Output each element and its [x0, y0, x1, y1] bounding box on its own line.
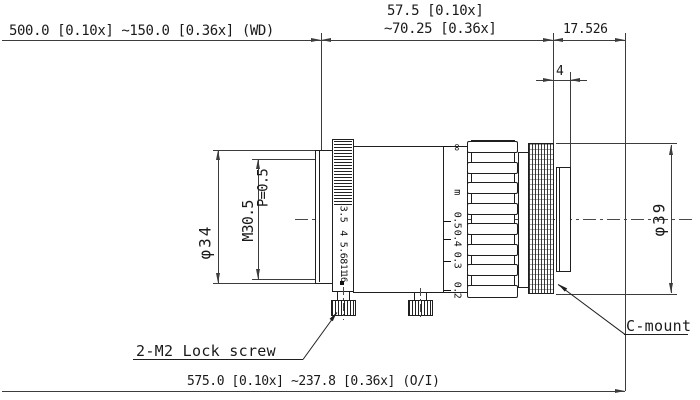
leader-arrowhead	[557, 282, 567, 291]
dimension-text-front-length-2: ~70.25 [0.36x]	[384, 22, 496, 37]
focus-scale-value: ∞	[451, 144, 464, 150]
dimension-line-front-diameter	[218, 150, 219, 283]
c-mount-thread-edge-line	[559, 168, 560, 271]
dimension-line-wd	[2, 40, 321, 41]
extension-line	[252, 279, 316, 280]
aperture-scale-value: 5.6	[338, 242, 349, 259]
arrowhead	[615, 389, 625, 393]
dimension-line-front	[321, 40, 553, 41]
extension-line	[556, 294, 677, 295]
dimension-text-filter-thread: M30.5	[241, 200, 257, 241]
focus-grip-rib	[467, 244, 518, 256]
lens-barrel	[353, 146, 444, 293]
aperture-index-mark	[340, 281, 344, 285]
extension-line	[556, 143, 677, 144]
focus-scale-value: 0.3	[452, 252, 463, 269]
leader-line	[558, 284, 626, 335]
rear-knurled-ring	[528, 143, 554, 294]
extension-line	[213, 283, 316, 284]
arrowhead	[311, 38, 321, 42]
focus-scale-tick	[444, 290, 451, 291]
focus-scale-value: 0.2	[452, 282, 463, 299]
focus-scale-unit: m	[452, 189, 463, 195]
dimension-text-thread-pitch: P=0.5	[257, 169, 272, 207]
focus-grip-rib	[467, 203, 518, 215]
lock-screw-centerline	[420, 288, 421, 320]
lens-technical-drawing: 3.5 4 5.6 8 11 16 ∞ m 0.5 0.4 0.3 0.2	[0, 0, 700, 400]
dimension-text-front-diameter: φ34	[198, 225, 215, 260]
focus-scale-tick	[444, 221, 451, 222]
dimension-text-flange-distance: 17.526	[563, 23, 608, 37]
dimension-text-working-distance: 500.0 [0.10x] ~150.0 [0.36x] (WD)	[9, 24, 274, 39]
aperture-ring-knurling	[334, 141, 352, 205]
focus-grip-rib	[467, 285, 518, 298]
focus-grip-rib	[467, 264, 518, 276]
front-rim-edge-line	[319, 151, 320, 282]
arrowhead	[543, 38, 553, 42]
focus-scale-value: 0.5	[452, 212, 463, 229]
front-rim-ring	[315, 150, 333, 284]
dimension-text-rear-diameter: φ39	[652, 202, 669, 237]
arrowhead	[669, 283, 673, 293]
arrowhead	[256, 269, 260, 279]
focus-scale-tick	[444, 261, 451, 262]
dimension-line-oi	[2, 391, 625, 392]
arrowhead	[216, 150, 220, 160]
focus-grip-rib	[467, 141, 518, 153]
aperture-scale-value: 4	[338, 230, 349, 236]
arrowhead	[570, 78, 580, 82]
aperture-scale-value: 8	[338, 258, 349, 264]
arrowhead	[216, 273, 220, 283]
c-mount-label: C-mount	[626, 317, 691, 335]
extension-line-flange	[553, 33, 554, 143]
dimension-text-object-image: 575.0 [0.10x] ~237.8 [0.36x] (O/I)	[187, 375, 440, 389]
lock-screw-centerline	[343, 287, 344, 320]
extension-line	[213, 150, 316, 151]
aperture-scale-value: 3.5	[338, 206, 349, 223]
arrowhead	[669, 145, 673, 155]
focus-grip-rib	[467, 223, 518, 235]
extension-line-thread-end	[570, 72, 571, 167]
image-plane-line	[625, 33, 626, 391]
lock-screw-label: 2-M2 Lock screw	[136, 342, 276, 360]
arrowhead	[553, 38, 563, 42]
arrowhead	[615, 38, 625, 42]
focus-grip-rib	[467, 182, 518, 194]
arrowhead	[543, 78, 553, 82]
focus-scale-value: 0.4	[452, 230, 463, 247]
dimension-text-thread-length: 4	[556, 65, 563, 79]
arrowhead	[256, 159, 260, 169]
focus-grip-rib	[467, 162, 518, 174]
extension-line-front-face	[321, 33, 322, 150]
extension-line	[252, 159, 316, 160]
focus-scale-tick	[444, 239, 451, 240]
dimension-text-front-length-1: 57.5 [0.10x]	[387, 4, 483, 19]
arrowhead	[321, 38, 331, 42]
